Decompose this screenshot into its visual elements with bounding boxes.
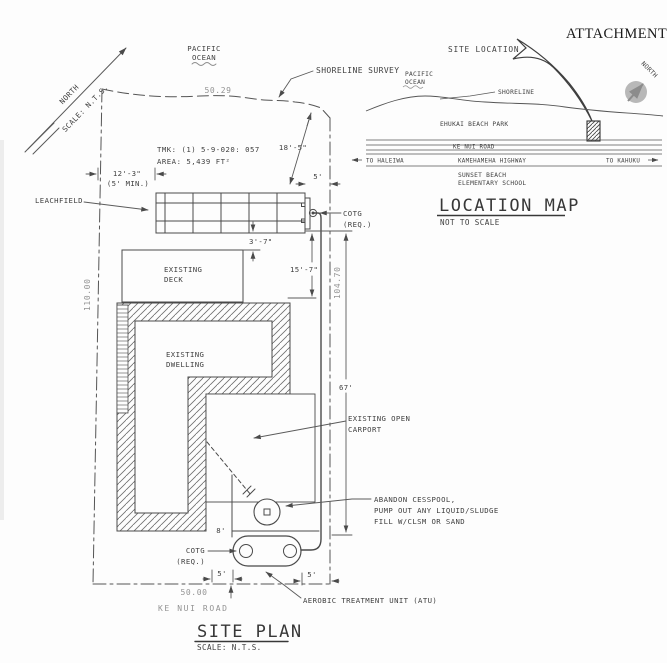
map-school-2: ELEMENTARY SCHOOL: [458, 180, 526, 187]
map-to-kahuku: TO KAHUKU: [606, 159, 640, 165]
map-shoreline: SHORELINE: [366, 89, 663, 116]
atu-tank: [233, 536, 301, 566]
dim-house-atu: 8': [216, 526, 225, 535]
cesspool-note-3: FILL W/CLSM OR SAND: [374, 517, 465, 526]
deck-label-2: DECK: [164, 275, 183, 284]
map-shoreline-label: SHORELINE: [498, 89, 534, 96]
carport-label-2: CARPORT: [348, 425, 382, 434]
dim-top: 50.29: [204, 86, 231, 95]
map-ocean-1: PACIFIC: [405, 71, 433, 78]
leachfield-callout: LEACHFIELD: [35, 196, 148, 210]
scan-artifact: [0, 140, 4, 520]
site-plan-document-page: NORTH SCALE: N.T.S. PACIFIC OCEAN SHOREL…: [0, 0, 667, 663]
ocean-label-1: PACIFIC: [187, 44, 221, 53]
map-north-arrow: NORTH: [625, 60, 659, 103]
ocean-label-group: PACIFIC OCEAN: [187, 44, 221, 66]
ke-nui-road-label: KE NUI ROAD: [158, 604, 229, 613]
map-ocean-2: OCEAN: [405, 79, 425, 86]
leachfield: [156, 193, 317, 233]
map-ocean-label: PACIFIC OCEAN: [403, 71, 433, 88]
existing-carport: EXISTING OPEN CARPORT: [206, 394, 410, 502]
map-to-haleiwa: TO HALEIWA: [366, 159, 404, 165]
tmk-line1: TMK: (1) 5-9-020: 057: [157, 145, 260, 154]
site-plan-drawing: NORTH SCALE: N.T.S. PACIFIC OCEAN SHOREL…: [0, 0, 667, 663]
deck-label-1: EXISTING: [164, 265, 202, 274]
cotg-top-label-1: COTG: [343, 209, 362, 218]
north-label: NORTH: [58, 83, 81, 106]
location-map: ATTACHMENT F SITE LOCATION PACIFIC OCEAN…: [352, 26, 667, 227]
cotg-bottom-label-1: COTG: [186, 546, 205, 555]
atu-label: AEROBIC TREATMENT UNIT (ATU): [303, 596, 437, 605]
carport-label-1: EXISTING OPEN: [348, 414, 410, 423]
attachment-label: ATTACHMENT F: [566, 26, 667, 42]
cotg-bottom-callout: COTG (REQ.): [176, 546, 236, 566]
location-map-scale: NOT TO SCALE: [440, 218, 500, 227]
dim-cesspool-run: 67': [339, 383, 353, 392]
map-road1-label: KE NUI ROAD: [453, 145, 495, 151]
dim-leach-offset-1: 12'-3": [113, 169, 141, 178]
map-site-parcel: [587, 121, 600, 141]
dim-leach-offset-2: (5' MIN.): [107, 179, 149, 188]
dim-leach-deck-gap: 3'-7": [249, 237, 272, 246]
site-plan: NORTH SCALE: N.T.S. PACIFIC OCEAN SHOREL…: [25, 44, 499, 652]
map-school-1: SUNSET BEACH: [458, 172, 506, 179]
dim-leach-side: 5': [313, 172, 322, 181]
cotg-bottom-label-2: (REQ.): [176, 557, 205, 566]
dwelling-label-2: DWELLING: [166, 360, 204, 369]
ocean-label-2: OCEAN: [192, 53, 216, 62]
tmk-line2: AREA: 5,439 FT²: [157, 157, 230, 166]
existing-deck: EXISTING DECK: [122, 250, 243, 302]
dim-right: 104.70: [333, 267, 342, 300]
water-wave-icon: [192, 63, 216, 66]
water-wave-icon: [403, 86, 423, 89]
dim-atu-right: 5': [307, 570, 316, 579]
dim-shoreline-setback: 18'-5": [279, 143, 307, 152]
dwelling-label-1: EXISTING: [166, 350, 204, 359]
dim-deck-gap: 15'-7": [290, 265, 318, 274]
dwelling-wall-texture: [117, 305, 128, 413]
dim-left: 110.00: [83, 279, 92, 312]
map-roads: KE NUI ROAD TO HALEIWA KAMEHAMEHA HIGHWA…: [352, 140, 662, 166]
cesspool: [254, 499, 280, 525]
atu-callout: AEROBIC TREATMENT UNIT (ATU): [266, 572, 437, 605]
map-north-label: NORTH: [639, 60, 658, 79]
map-road2-label: KAMEHAMEHA HIGHWAY: [458, 159, 526, 165]
north-arrow: NORTH SCALE: N.T.S.: [25, 48, 126, 154]
location-map-title-block: LOCATION MAP NOT TO SCALE: [437, 196, 580, 227]
leachfield-label: LEACHFIELD: [35, 196, 83, 205]
map-park-label: EHUKAI BEACH PARK: [440, 121, 508, 128]
cesspool-note-2: PUMP OUT ANY LIQUID/SLUDGE: [374, 506, 499, 515]
cesspool-note: ABANDON CESSPOOL, PUMP OUT ANY LIQUID/SL…: [286, 495, 499, 526]
cotg-top-label-2: (REQ.): [343, 220, 372, 229]
location-map-title: LOCATION MAP: [439, 196, 580, 216]
site-location-label: SITE LOCATION: [448, 45, 519, 54]
shoreline-survey-label: SHORELINE SURVEY: [316, 66, 399, 75]
site-plan-title-block: SITE PLAN SCALE: N.T.S.: [195, 622, 303, 652]
dim-bottom: 50.00: [180, 588, 207, 597]
dim-atu-left: 5': [217, 569, 226, 578]
boundary-left: [93, 89, 102, 584]
site-plan-title: SITE PLAN: [197, 622, 303, 642]
site-plan-scale: SCALE: N.T.S.: [197, 643, 262, 652]
cesspool-note-1: ABANDON CESSPOOL,: [374, 495, 455, 504]
cotg-top-callout: COTG (REQ.): [320, 209, 372, 229]
shoreline-survey-callout: SHORELINE SURVEY: [279, 66, 399, 97]
